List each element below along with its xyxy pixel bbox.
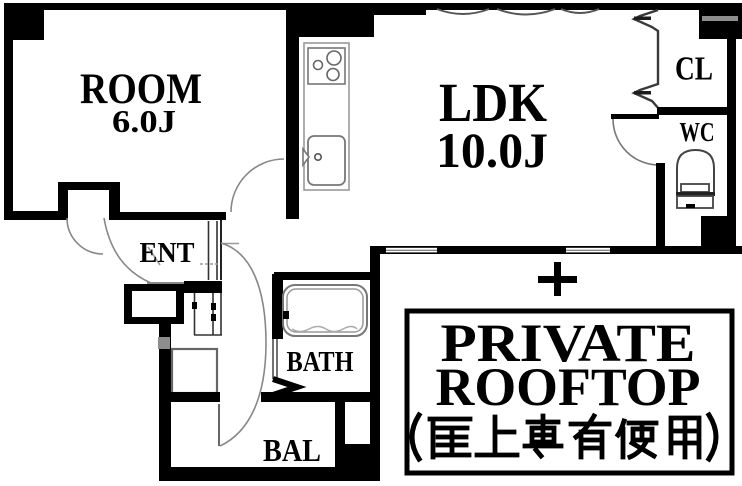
svg-text:BATH: BATH [287, 346, 354, 378]
svg-text:6.0J: 6.0J [112, 103, 176, 139]
svg-text:ENT: ENT [140, 237, 195, 269]
svg-text:CL: CL [675, 51, 713, 88]
svg-text:BAL: BAL [263, 432, 321, 468]
svg-text:10.0J: 10.0J [436, 122, 548, 178]
svg-text:WC: WC [680, 117, 715, 147]
svg-text:ROOFTOP: ROOFTOP [436, 357, 701, 417]
